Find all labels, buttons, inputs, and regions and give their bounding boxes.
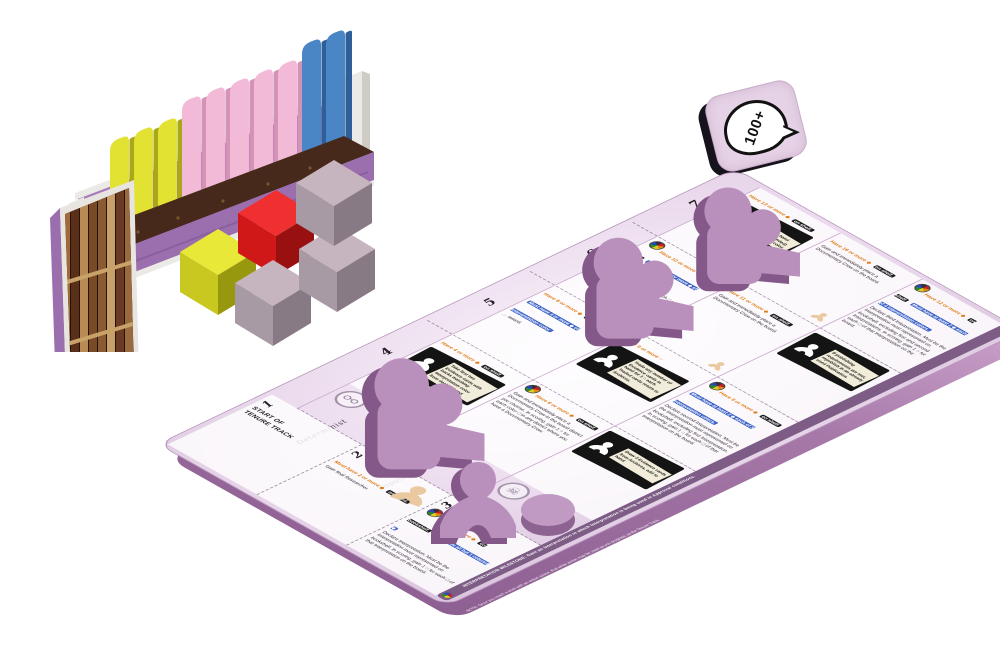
tenure-step-number: 5 [480, 297, 501, 308]
speech-bubble-icon: 100+ [718, 93, 793, 161]
black-action-box: Trade any number of Evidence cards in ha… [576, 343, 690, 402]
interpretation-wheel-icon [440, 592, 454, 599]
token-face: 100+ [702, 77, 810, 175]
interpretation-wheel-icon [705, 380, 728, 392]
game-photo-canvas: { "scene": { "description": "Board game … [0, 0, 1000, 667]
action-note: Draw 3 Evidence cards from Archives, add… [608, 448, 671, 483]
camera-meeple-piece [678, 182, 810, 296]
token-label: 100+ [741, 107, 769, 146]
purple-disc-piece [508, 486, 588, 542]
score-token-100plus: 100+ [700, 84, 812, 180]
interpretation-wheel-icon [911, 282, 934, 294]
interpretation-wheel-icon [522, 383, 545, 395]
action-note: If publishing requirements are met, repu… [811, 349, 880, 386]
bookshelf-rack [48, 2, 468, 352]
bookshelf-picture-panel [50, 180, 143, 352]
